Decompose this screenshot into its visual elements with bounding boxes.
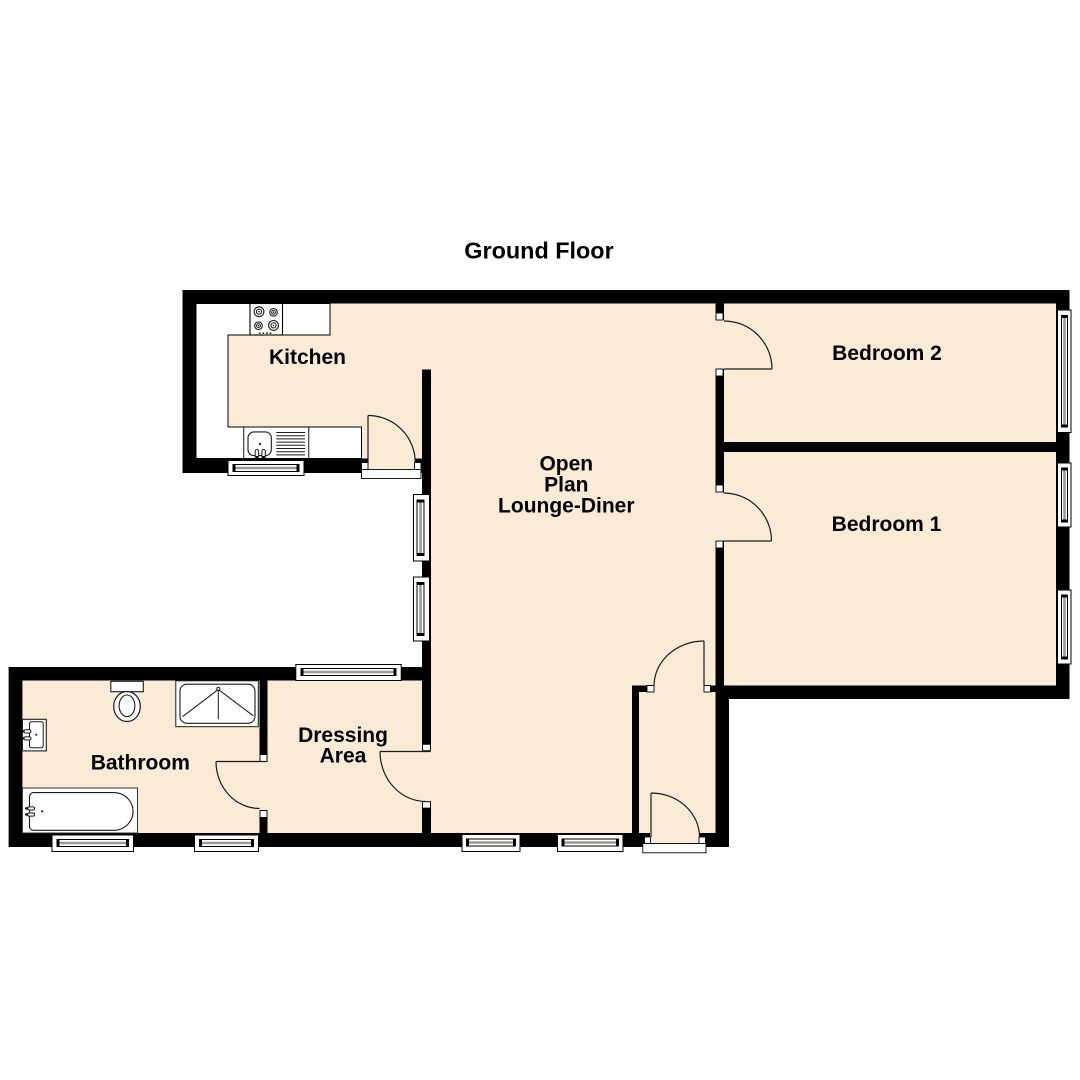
- svg-text:Open: Open: [539, 453, 593, 476]
- svg-text:Bedroom 2: Bedroom 2: [832, 342, 942, 365]
- svg-text:Area: Area: [320, 745, 367, 768]
- svg-text:Kitchen: Kitchen: [269, 346, 346, 369]
- svg-text:Ground Floor: Ground Floor: [464, 238, 613, 264]
- svg-text:Bedroom 1: Bedroom 1: [832, 513, 942, 536]
- svg-text:Lounge-Diner: Lounge-Diner: [498, 495, 635, 518]
- svg-text:Bathroom: Bathroom: [91, 752, 190, 775]
- svg-text:Plan: Plan: [544, 474, 588, 497]
